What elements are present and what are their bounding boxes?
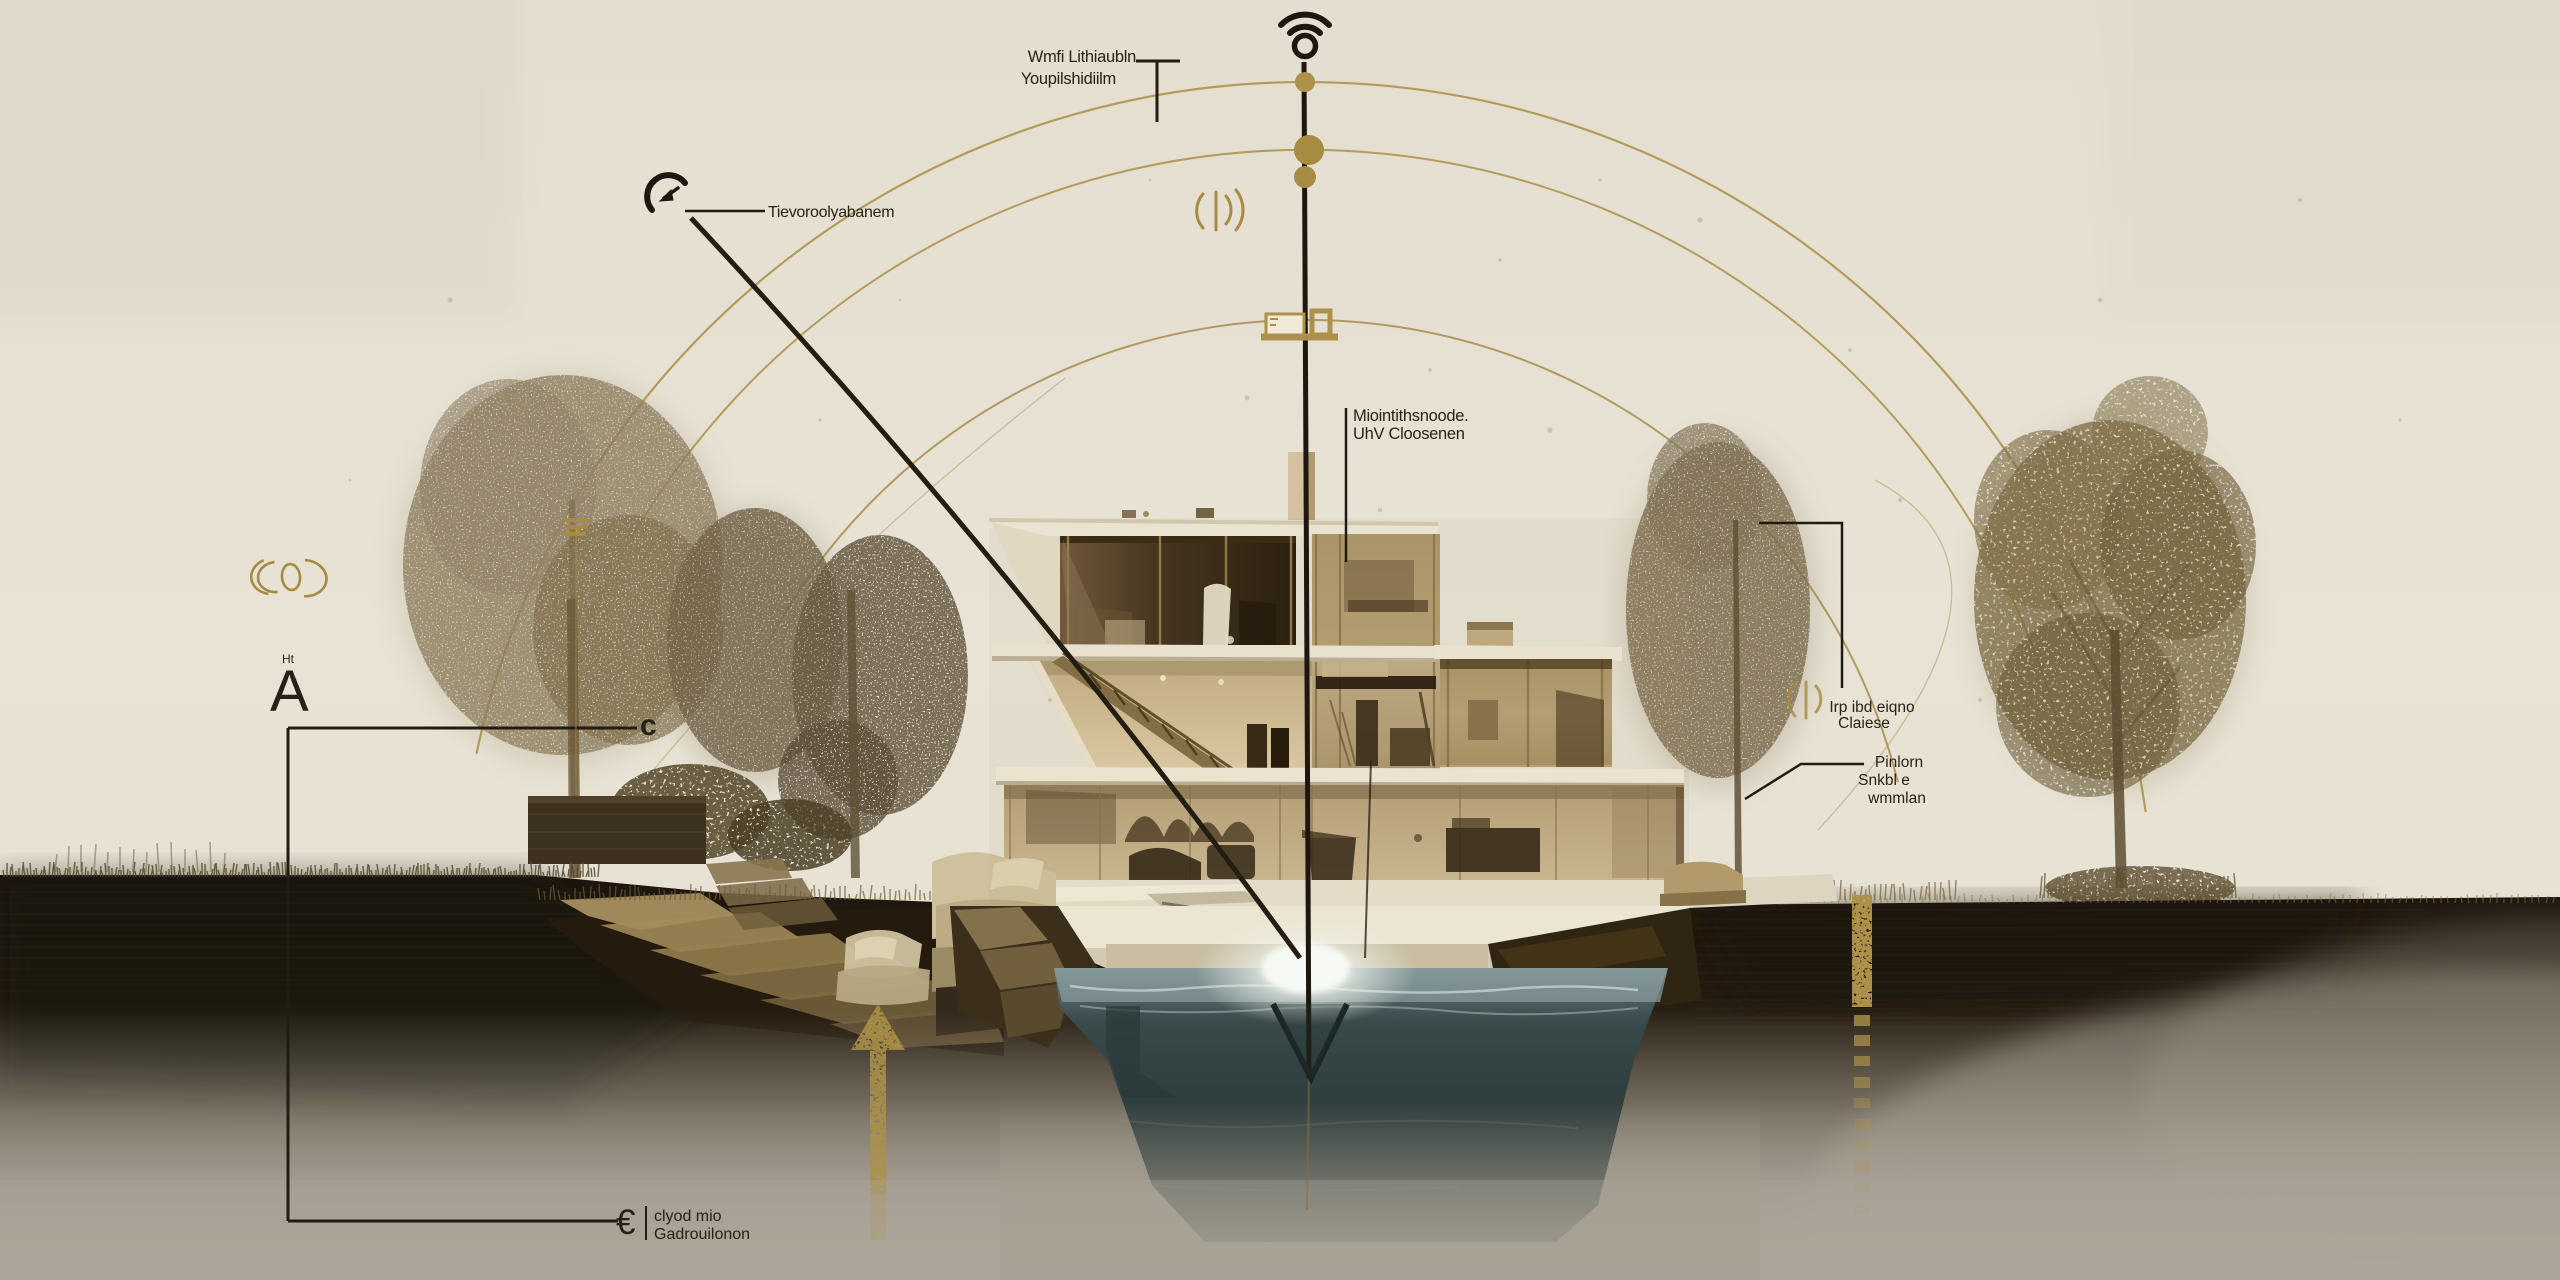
- svg-text:Tievoroolyabanem: Tievoroolyabanem: [768, 204, 894, 221]
- svg-text:Wmfi Lithiaubln: Wmfi Lithiaubln: [1028, 48, 1136, 66]
- svg-text:wmmlan: wmmlan: [1867, 790, 1926, 807]
- svg-text:Snkbl e: Snkbl e: [1858, 772, 1910, 789]
- svg-text:Youpilshidiilm: Youpilshidiilm: [1021, 70, 1116, 88]
- svg-text:Gadrouilonon: Gadrouilonon: [654, 1226, 750, 1243]
- svg-text:Pinlorn: Pinlorn: [1875, 754, 1923, 771]
- svg-text:A: A: [270, 659, 309, 724]
- svg-text:€: €: [616, 1203, 635, 1242]
- svg-text:Ht: Ht: [282, 652, 295, 666]
- svg-text:c: c: [640, 709, 657, 742]
- svg-text:Irp ibd eiqno: Irp ibd eiqno: [1829, 699, 1914, 716]
- svg-text:UhV Cloosenen: UhV Cloosenen: [1353, 425, 1465, 443]
- svg-text:clyod mio: clyod mio: [654, 1208, 722, 1225]
- svg-text:Miointithsnoode.: Miointithsnoode.: [1353, 407, 1468, 425]
- svg-text:Claiese: Claiese: [1838, 715, 1890, 732]
